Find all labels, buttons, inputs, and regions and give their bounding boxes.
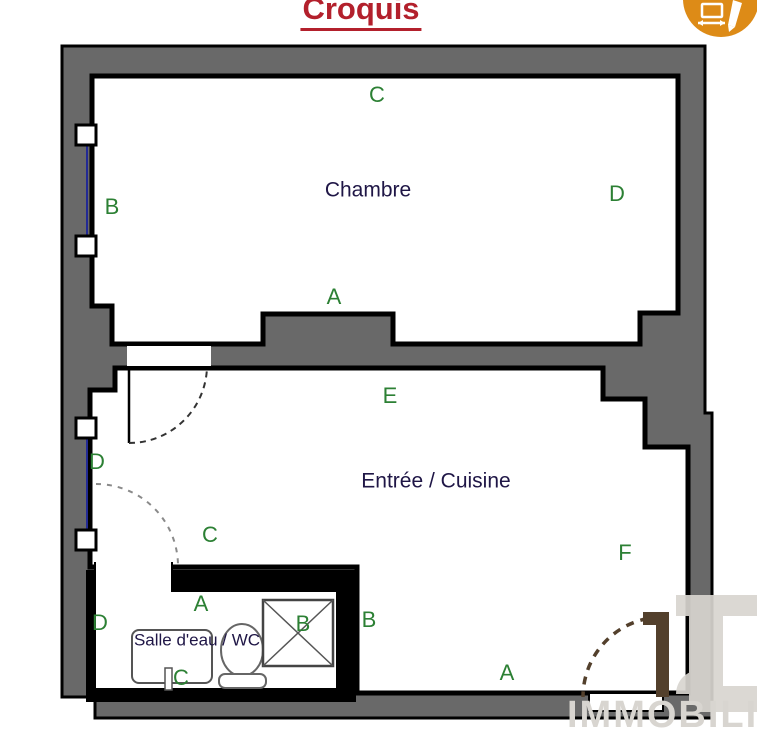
floor-plan-sketch-icon [681, 0, 757, 44]
entree-window-end-bottom [76, 530, 96, 550]
chambre-window-end-top [76, 125, 96, 145]
room-chambre-floor [92, 76, 678, 344]
toilet-base [219, 674, 266, 688]
sink-tap [165, 668, 172, 690]
floor-plan-page: Croquis Chambre C B D A Entrée / Cuisine… [0, 0, 757, 730]
entrance-door-leaf [656, 616, 669, 697]
floor-plan-drawing [0, 0, 757, 730]
chambre-door-opening [127, 346, 211, 366]
bathroom-door-opening [95, 562, 172, 592]
entrance-door-opening [589, 693, 663, 711]
shower-icon [263, 600, 333, 666]
toilet-icon [221, 624, 263, 676]
chambre-window-end-bottom [76, 236, 96, 256]
entree-window-end-top [76, 418, 96, 438]
